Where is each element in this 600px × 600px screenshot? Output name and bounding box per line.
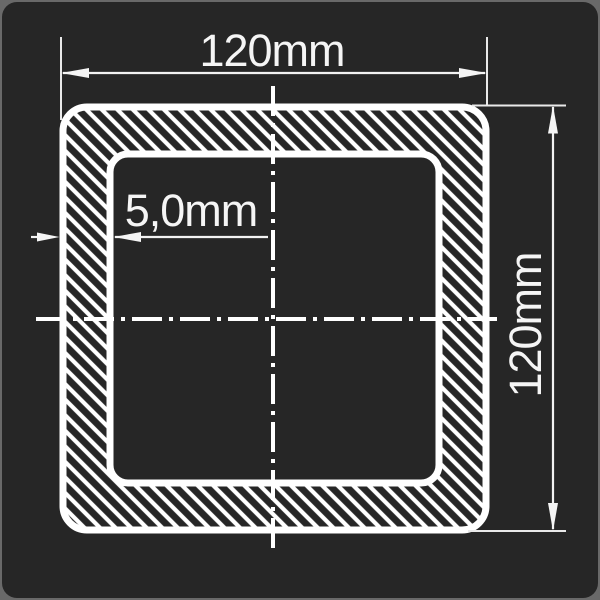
drawing-canvas: 120mm 120mm 5,0mm — [0, 0, 600, 600]
height-dimension-label: 120mm — [500, 252, 551, 397]
width-dimension-label: 120mm — [199, 25, 344, 76]
technical-drawing-card: 120mm 120mm 5,0mm — [0, 0, 600, 600]
thickness-dimension-label: 5,0mm — [125, 185, 258, 236]
